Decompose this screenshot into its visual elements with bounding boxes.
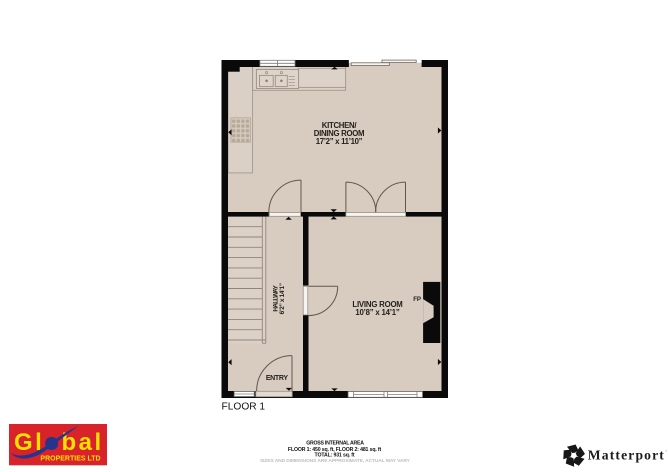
svg-text:6’2” x 14’1”: 6’2” x 14’1”	[279, 283, 286, 314]
svg-text:SIZES AND DIMENSIONS ARE APPRO: SIZES AND DIMENSIONS ARE APPROXIMATE, AC…	[260, 458, 411, 464]
svg-text:ENTRY: ENTRY	[266, 375, 289, 382]
svg-text:FP: FP	[413, 296, 421, 303]
svg-text:10’8” x 14’1”: 10’8” x 14’1”	[355, 308, 400, 317]
svg-text:GROSS INTERNAL AREA: GROSS INTERNAL AREA	[306, 441, 364, 447]
svg-text:FLOOR 1: FLOOR 1	[222, 402, 266, 413]
svg-text:Global: Global	[14, 429, 104, 456]
svg-text:17’2” x 11’10”: 17’2” x 11’10”	[316, 137, 363, 146]
svg-text:PROPERTIES LTD: PROPERTIES LTD	[40, 455, 100, 462]
svg-text:TOTAL: 931 sq. ft: TOTAL: 931 sq. ft	[315, 453, 355, 459]
svg-text:Matterportʾ: Matterportʾ	[588, 448, 668, 463]
